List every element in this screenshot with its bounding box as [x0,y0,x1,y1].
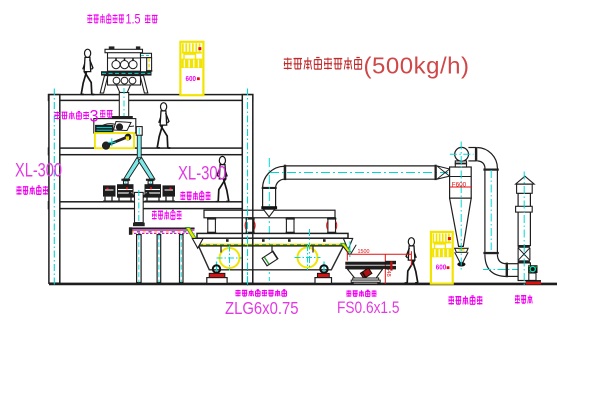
svg-text:(500kg/h): (500kg/h) [364,53,470,79]
svg-text:FS0.6x1.5: FS0.6x1.5 [337,298,400,317]
svg-text:3: 3 [90,108,99,126]
svg-text:600: 600 [436,263,447,272]
svg-text:XL-300: XL-300 [15,160,62,182]
svg-text:600: 600 [185,74,196,83]
svg-text:1.5: 1.5 [126,11,141,27]
svg-text:ZLG6x0.75: ZLG6x0.75 [225,298,299,318]
svg-text:1500: 1500 [358,249,370,255]
svg-text:XL-300: XL-300 [178,163,226,185]
